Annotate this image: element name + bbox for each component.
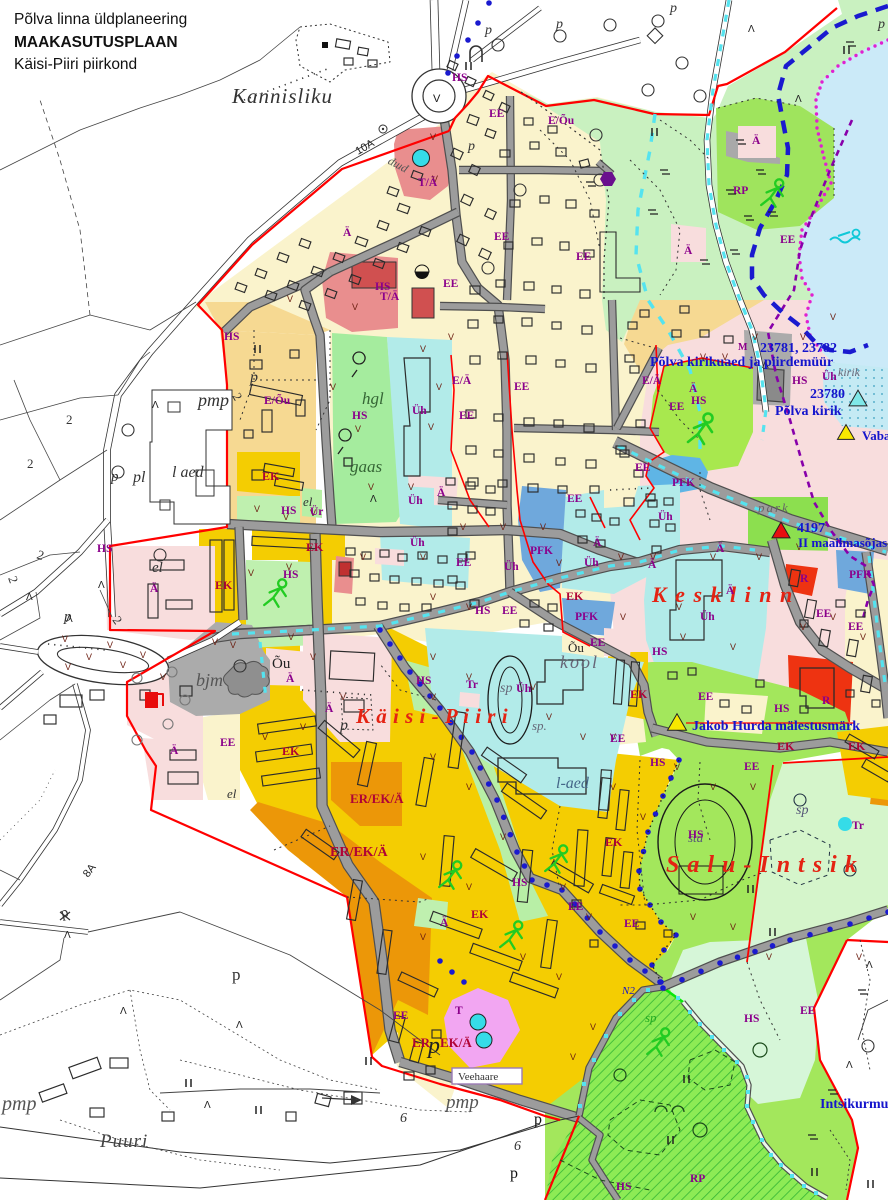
svg-text:E/Ä: E/Ä	[642, 373, 662, 387]
svg-text:pmp: pmp	[444, 1092, 479, 1113]
svg-text:V: V	[690, 912, 696, 922]
svg-text:Ä: Ä	[343, 225, 352, 239]
svg-text:HS: HS	[475, 605, 490, 617]
svg-text:Ä: Ä	[170, 743, 179, 757]
svg-text:EK/Ä: EK/Ä	[440, 1035, 472, 1050]
svg-text:Käisi-Piiri piirkond: Käisi-Piiri piirkond	[14, 56, 137, 73]
svg-text:HS: HS	[224, 331, 239, 343]
svg-text:E/Õu: E/Õu	[264, 393, 291, 407]
svg-text:HS: HS	[512, 877, 527, 889]
svg-text:Põlva kirikuaed ja piirdemüür: Põlva kirikuaed ja piirdemüür	[650, 355, 833, 370]
svg-text:Ä: Ä	[684, 243, 693, 257]
svg-text:V: V	[287, 294, 293, 304]
svg-text:EK: EK	[306, 540, 324, 554]
svg-text:Ä: Ä	[150, 581, 159, 595]
svg-text:el: el	[227, 786, 237, 801]
svg-text:EE: EE	[459, 410, 475, 422]
svg-text:el: el	[152, 560, 163, 576]
svg-text:EE: EE	[494, 231, 510, 243]
svg-text:V: V	[430, 132, 436, 142]
svg-text:V: V	[408, 482, 414, 492]
svg-text:EE: EE	[635, 462, 651, 474]
svg-text:V: V	[620, 612, 626, 622]
svg-text:V: V	[590, 1022, 596, 1032]
svg-text:Vaba: Vaba	[862, 428, 888, 443]
svg-text:V: V	[674, 762, 680, 772]
svg-text:V: V	[436, 382, 442, 392]
svg-text:Λ: Λ	[795, 94, 802, 105]
svg-text:EE: EE	[443, 278, 459, 290]
svg-text:V: V	[230, 640, 236, 650]
svg-text:HS: HS	[352, 410, 367, 422]
svg-text:V: V	[420, 344, 426, 354]
svg-text:E/Ä: E/Ä	[452, 373, 472, 387]
svg-text:V: V	[330, 382, 336, 392]
svg-text:EK: EK	[262, 469, 280, 483]
svg-text:EE: EE	[848, 621, 864, 633]
svg-text:V: V	[107, 640, 113, 650]
svg-text:Ä: Ä	[440, 915, 449, 929]
svg-text:Λ: Λ	[98, 580, 105, 591]
svg-text:V: V	[428, 422, 434, 432]
svg-text:EE: EE	[698, 691, 714, 703]
svg-text:T/Ä: T/Ä	[418, 175, 438, 189]
svg-text:V: V	[466, 602, 472, 612]
svg-text:sp: sp	[500, 681, 512, 696]
svg-text:V: V	[212, 637, 218, 647]
svg-text:M: M	[738, 342, 748, 353]
svg-text:p: p	[510, 1165, 518, 1182]
svg-text:V: V	[140, 650, 146, 660]
svg-text:EK: EK	[471, 907, 489, 921]
svg-text:RP: RP	[690, 1173, 705, 1185]
svg-text:EK: EK	[848, 739, 866, 753]
svg-text:l-aed: l-aed	[556, 775, 590, 792]
svg-text:park: park	[757, 500, 790, 515]
svg-text:EE: EE	[489, 108, 505, 120]
svg-text:Ä: Ä	[437, 485, 446, 499]
svg-text:Tr: Tr	[852, 820, 864, 832]
svg-text:S a l u - I n t s i k: S a l u - I n t s i k	[666, 852, 858, 878]
svg-text:V: V	[262, 732, 268, 742]
svg-text:Λ: Λ	[204, 1100, 211, 1111]
svg-text:p: p	[484, 23, 492, 38]
svg-text:Üh: Üh	[516, 681, 532, 695]
svg-text:EE: EE	[624, 918, 640, 930]
svg-text:V: V	[360, 552, 366, 562]
svg-text:V: V	[710, 782, 716, 792]
svg-text:bjm: bjm	[196, 670, 223, 690]
svg-text:V: V	[730, 922, 736, 932]
svg-text:EE: EE	[816, 608, 832, 620]
svg-text:HS: HS	[452, 72, 467, 84]
svg-text:ER/EK/Ä: ER/EK/Ä	[350, 791, 404, 806]
svg-text:Ä: Ä	[726, 583, 735, 597]
svg-text:V: V	[556, 972, 562, 982]
svg-text:Üh: Üh	[504, 559, 519, 573]
svg-text:V: V	[62, 634, 68, 644]
svg-text:V: V	[420, 852, 426, 862]
svg-text:Λ: Λ	[236, 1020, 243, 1031]
svg-text:V: V	[460, 522, 466, 532]
svg-text:V: V	[546, 712, 552, 722]
svg-text:Puuri: Puuri	[99, 1131, 148, 1152]
svg-text:V: V	[430, 592, 436, 602]
svg-text:HS: HS	[744, 1013, 759, 1025]
svg-text:V: V	[540, 522, 546, 532]
svg-text:Ä: Ä	[286, 671, 295, 685]
svg-text:p: p	[426, 1033, 440, 1059]
svg-text:Põlva kirik: Põlva kirik	[775, 404, 842, 419]
svg-text:V: V	[860, 632, 866, 642]
svg-text:EE: EE	[568, 901, 584, 913]
svg-text:Üh: Üh	[584, 555, 599, 569]
svg-text:V: V	[856, 952, 862, 962]
svg-text:Jakob Hurda mälestusmärk: Jakob Hurda mälestusmärk	[692, 719, 860, 734]
svg-text:p: p	[232, 965, 241, 984]
svg-text:Λ: Λ	[64, 930, 71, 941]
svg-text:V: V	[254, 504, 260, 514]
svg-text:EE: EE	[220, 737, 236, 749]
svg-text:RP: RP	[733, 185, 748, 197]
svg-text:Λ: Λ	[748, 24, 755, 35]
svg-text:pmp: pmp	[0, 1093, 36, 1115]
svg-text:p: p	[534, 1111, 542, 1128]
svg-text:V: V	[352, 302, 358, 312]
svg-text:V: V	[730, 642, 736, 652]
svg-text:EK: EK	[215, 578, 233, 592]
svg-text:2: 2	[66, 412, 73, 427]
svg-text:kool: kool	[560, 652, 599, 672]
svg-text:2: 2	[27, 456, 34, 471]
svg-text:V: V	[766, 952, 772, 962]
svg-text:p: p	[669, 1, 677, 16]
svg-text:V: V	[640, 812, 646, 822]
svg-text:Veehaare: Veehaare	[458, 1071, 498, 1083]
svg-text:EE: EE	[514, 381, 530, 393]
svg-text:kirik: kirik	[838, 365, 861, 379]
svg-text:23780: 23780	[810, 387, 845, 402]
svg-text:p: p	[339, 717, 348, 734]
svg-text:gaas: gaas	[350, 457, 383, 476]
svg-text:pl: pl	[132, 469, 146, 486]
svg-text:V: V	[500, 522, 506, 532]
svg-text:II maailmasõjas: II maailmasõjas	[798, 535, 887, 550]
svg-text:V: V	[86, 652, 92, 662]
svg-text:HS: HS	[283, 569, 298, 581]
svg-text:Ä: Ä	[593, 535, 602, 549]
svg-text:V: V	[520, 952, 526, 962]
svg-text:EE: EE	[780, 234, 796, 246]
svg-text:p: p	[63, 609, 72, 625]
svg-text:hgl: hgl	[362, 389, 384, 408]
svg-text:V: V	[65, 662, 71, 672]
svg-text:EE: EE	[502, 605, 518, 617]
svg-text:EE: EE	[456, 557, 472, 569]
svg-text:EK: EK	[777, 739, 795, 753]
svg-text:V: V	[368, 482, 374, 492]
svg-text:HS: HS	[652, 646, 667, 658]
svg-text:Üh: Üh	[700, 609, 715, 623]
svg-text:V: V	[340, 692, 346, 702]
svg-text:sp.: sp.	[532, 718, 547, 733]
svg-text:V: V	[556, 558, 562, 568]
svg-text:HS: HS	[688, 829, 703, 841]
svg-text:V: V	[610, 782, 616, 792]
svg-text:Intsikurmu: Intsikurmu	[820, 1097, 888, 1112]
svg-text:EE: EE	[576, 251, 592, 263]
svg-text:Põlva linna üldplaneering: Põlva linna üldplaneering	[14, 11, 187, 28]
svg-text:p: p	[110, 469, 119, 485]
svg-text:HS: HS	[691, 395, 706, 407]
svg-text:p: p	[555, 17, 563, 32]
svg-text:Λ: Λ	[120, 1006, 127, 1017]
svg-text:Λ: Λ	[370, 494, 377, 505]
svg-text:PFK: PFK	[849, 569, 872, 581]
svg-text:V: V	[420, 552, 426, 562]
svg-text:sp: sp	[796, 803, 808, 818]
svg-text:V: V	[300, 722, 306, 732]
svg-text:Ür: Ür	[310, 504, 323, 518]
svg-text:V: V	[160, 672, 166, 682]
svg-text:Kannisliku: Kannisliku	[231, 84, 333, 108]
svg-text:K ä i s i - P i i r i: K ä i s i - P i i r i	[355, 704, 508, 728]
svg-text:Ä: Ä	[325, 701, 334, 715]
svg-text:4197: 4197	[797, 521, 825, 536]
svg-text:V: V	[433, 93, 441, 105]
svg-text:V: V	[288, 632, 294, 642]
svg-text:Λ: Λ	[26, 592, 33, 603]
svg-text:EE: EE	[669, 401, 685, 413]
svg-text:EK: EK	[282, 744, 300, 758]
svg-text:6: 6	[514, 1139, 521, 1154]
svg-text:Õu: Õu	[272, 655, 291, 672]
svg-text:K e s k l i n n: K e s k l i n n	[651, 582, 794, 607]
svg-text:Ä: Ä	[752, 133, 761, 147]
svg-text:HS: HS	[774, 703, 789, 715]
svg-text:V: V	[560, 882, 566, 892]
svg-text:V: V	[430, 692, 436, 702]
svg-text:p: p	[249, 369, 258, 386]
svg-text:HS: HS	[650, 757, 665, 769]
svg-text:l aed: l aed	[172, 464, 205, 481]
svg-text:V: V	[586, 912, 592, 922]
svg-text:V: V	[580, 732, 586, 742]
svg-text:V: V	[310, 652, 316, 662]
svg-text:V: V	[800, 622, 806, 632]
svg-text:T: T	[455, 1005, 463, 1017]
svg-text:ER/EK/Ä: ER/EK/Ä	[330, 844, 388, 860]
svg-text:V: V	[756, 552, 762, 562]
svg-text:EE: EE	[744, 761, 760, 773]
svg-text:Üh: Üh	[658, 509, 673, 523]
svg-text:N2: N2	[621, 985, 635, 997]
svg-text:V: V	[448, 332, 454, 342]
svg-text:p: p	[467, 139, 475, 154]
svg-text:V: V	[430, 752, 436, 762]
svg-text:Ä: Ä	[648, 557, 657, 571]
svg-text:MAAKASUTUSPLAAN: MAAKASUTUSPLAAN	[14, 34, 178, 51]
svg-text:Üh: Üh	[412, 403, 427, 417]
svg-text:EE: EE	[610, 733, 626, 745]
svg-text:HS: HS	[281, 505, 296, 517]
svg-text:R: R	[800, 573, 809, 585]
svg-text:E/Õu: E/Õu	[548, 113, 575, 127]
svg-text:V: V	[420, 932, 426, 942]
svg-text:Üh: Üh	[822, 369, 837, 383]
svg-text:PFK: PFK	[672, 477, 695, 489]
svg-text:HS: HS	[792, 375, 807, 387]
svg-text:R: R	[822, 695, 831, 707]
svg-text:V: V	[120, 660, 126, 670]
svg-text:V: V	[466, 782, 472, 792]
svg-text:Üh: Üh	[408, 493, 423, 507]
svg-text:V: V	[752, 332, 758, 342]
svg-text:EK: EK	[605, 835, 623, 849]
svg-text:V: V	[500, 832, 506, 842]
svg-text:HS: HS	[416, 675, 431, 687]
svg-text:EE: EE	[393, 1010, 409, 1022]
svg-text:EE: EE	[567, 493, 583, 505]
svg-text:6: 6	[400, 1111, 407, 1126]
svg-text:PFK: PFK	[530, 545, 553, 557]
svg-text:V: V	[618, 552, 624, 562]
svg-text:Ä: Ä	[716, 541, 725, 555]
svg-text:sp: sp	[645, 1010, 657, 1025]
svg-text:PFK: PFK	[575, 611, 598, 623]
svg-text:Λ: Λ	[846, 1060, 853, 1071]
svg-text:V: V	[680, 632, 686, 642]
svg-text:Λ: Λ	[152, 400, 159, 411]
svg-text:V: V	[430, 652, 436, 662]
svg-text:HS: HS	[616, 1181, 631, 1193]
svg-text:V: V	[830, 312, 836, 322]
svg-text:Üh: Üh	[410, 535, 425, 549]
svg-text:Õu: Õu	[568, 640, 584, 655]
svg-text:pmp: pmp	[196, 390, 229, 410]
svg-text:EK: EK	[566, 589, 584, 603]
svg-text:V: V	[750, 782, 756, 792]
svg-text:Ä: Ä	[689, 381, 698, 395]
svg-text:V: V	[466, 882, 472, 892]
svg-text:V: V	[248, 568, 254, 578]
svg-text:EK: EK	[630, 687, 648, 701]
svg-text:EE: EE	[590, 637, 606, 649]
svg-text:EE: EE	[800, 1005, 816, 1017]
svg-text:V: V	[570, 1052, 576, 1062]
svg-text:T/Ä: T/Ä	[380, 289, 400, 303]
svg-text:p: p	[877, 17, 885, 32]
svg-text:23781, 23782: 23781, 23782	[760, 341, 837, 356]
svg-text:Tr: Tr	[466, 679, 478, 691]
svg-text:V: V	[355, 424, 361, 434]
svg-text:HS: HS	[97, 543, 112, 555]
